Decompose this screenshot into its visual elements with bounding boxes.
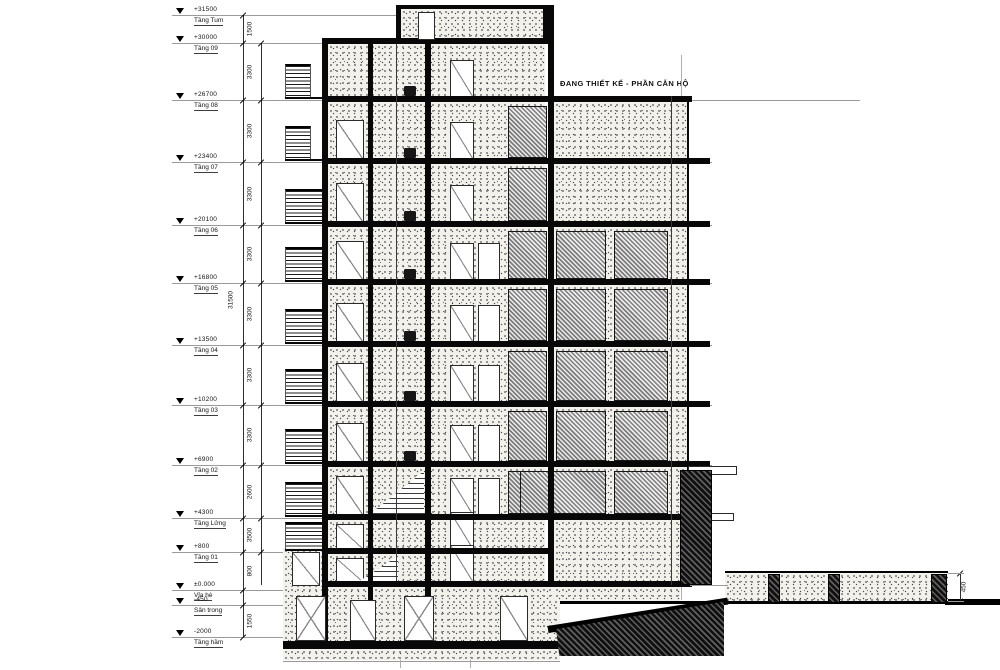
penthouse-wall xyxy=(543,5,550,40)
balcony-railing xyxy=(285,429,324,463)
level-elevation: +13500 xyxy=(194,336,217,343)
balcony-slab xyxy=(285,549,322,551)
basement-door xyxy=(404,596,434,641)
interior-door xyxy=(450,185,474,223)
level-elevation: +20100 xyxy=(194,216,217,223)
level-marker-triangle xyxy=(176,93,184,99)
toilet-fixture xyxy=(404,269,416,279)
shear-wall xyxy=(425,40,431,585)
floor-slab xyxy=(322,548,552,554)
slab-stub xyxy=(692,279,710,285)
stipple-wall xyxy=(328,44,545,96)
balcony-door xyxy=(336,363,364,403)
dimension-text: 1550 xyxy=(247,614,254,628)
dimension-line xyxy=(243,15,244,637)
glazing-hatch-panel xyxy=(614,289,668,341)
level-line xyxy=(172,15,400,16)
level-name: Tầng 03 xyxy=(194,407,218,416)
level-name: Tầng 04 xyxy=(194,347,218,356)
stipple-wall xyxy=(554,164,688,221)
balcony-slab xyxy=(285,280,322,282)
floor-slab xyxy=(322,341,692,347)
level-elevation: +23400 xyxy=(194,153,217,160)
floor-slab xyxy=(322,221,692,227)
core-wall xyxy=(548,5,554,641)
level-marker-triangle xyxy=(176,458,184,464)
slab-stub xyxy=(692,401,710,407)
level-line xyxy=(172,637,283,638)
level-elevation: -450 xyxy=(194,596,208,603)
shear-wall xyxy=(368,40,373,585)
boundary-wall-post xyxy=(828,574,840,603)
dimension-text: 3500 xyxy=(247,528,254,542)
balcony-slab xyxy=(285,222,322,224)
level-line xyxy=(172,590,285,591)
dimension-text: 1500 xyxy=(247,22,254,36)
basement-door xyxy=(500,596,528,641)
level-marker-triangle xyxy=(176,583,184,589)
level-elevation: +800 xyxy=(194,543,209,550)
interior-door xyxy=(450,305,474,343)
dimension-text: 3300 xyxy=(247,247,254,261)
glazing-hatch-panel xyxy=(614,231,668,279)
level-name: Tầng hầm xyxy=(194,639,223,648)
slab-stub xyxy=(692,221,710,227)
dimension-text: 3300 xyxy=(247,64,254,78)
basement-door xyxy=(350,600,376,641)
level-name: Tầng 07 xyxy=(194,164,218,173)
interior-door xyxy=(478,243,500,281)
interior-door xyxy=(450,478,474,516)
balcony-slab xyxy=(285,97,322,99)
stipple-wall xyxy=(554,520,688,581)
entrance-door xyxy=(292,552,320,586)
level-elevation: +26700 xyxy=(194,91,217,98)
level-name: Tầng Lửng xyxy=(194,520,226,529)
balcony-door xyxy=(336,524,364,550)
glazing-hatch-panel xyxy=(556,231,606,279)
interior-door xyxy=(450,365,474,403)
penthouse-window xyxy=(418,12,435,40)
basement-door xyxy=(296,596,326,641)
slab-stub xyxy=(692,158,710,164)
boundary-wall-post xyxy=(768,574,780,603)
dimension-text: 800 xyxy=(247,566,254,577)
toilet-fixture xyxy=(404,148,416,158)
level-marker-triangle xyxy=(176,511,184,517)
balcony-door xyxy=(336,423,364,463)
balcony-slab xyxy=(285,159,322,161)
level-name: Tầng 09 xyxy=(194,45,218,54)
balcony-railing xyxy=(285,522,324,550)
dimension-text: 3300 xyxy=(247,186,254,200)
level-name: Tầng Tum xyxy=(194,17,223,26)
level-marker-triangle xyxy=(176,276,184,282)
dimension-text: 3300 xyxy=(247,368,254,382)
glazing-hatch-panel xyxy=(556,411,606,461)
dimension-text: 31500 xyxy=(228,291,235,309)
level-elevation: ±0.000 xyxy=(194,581,215,588)
level-line xyxy=(172,605,285,606)
balcony-door xyxy=(336,476,364,516)
boundary-wall-post xyxy=(931,574,947,603)
toilet-fixture xyxy=(404,86,416,96)
ground-line xyxy=(945,599,1000,605)
balcony-door xyxy=(336,303,364,343)
toilet-fixture xyxy=(404,331,416,341)
partition-wall xyxy=(396,44,397,581)
floor-slab xyxy=(322,96,692,102)
balcony-door xyxy=(336,183,364,223)
balcony-slab xyxy=(285,342,322,344)
floor-slab xyxy=(322,461,692,467)
interior-door xyxy=(450,243,474,281)
level-name: Tầng 01 xyxy=(194,554,218,563)
glazing-hatch-panel xyxy=(508,106,547,158)
interior-door xyxy=(478,425,500,463)
shear-wall xyxy=(322,40,328,585)
glazing-hatch-panel xyxy=(508,351,547,401)
dimension-text: 3300 xyxy=(247,307,254,321)
level-marker-triangle xyxy=(176,218,184,224)
level-elevation: +31500 xyxy=(194,6,217,13)
balcony-railing xyxy=(285,309,324,343)
glazing-hatch-panel xyxy=(508,168,547,221)
sidewalk-line xyxy=(690,585,728,586)
foundation-line xyxy=(283,661,560,662)
glazing-hatch-panel xyxy=(556,351,606,401)
dimension-text: 2600 xyxy=(247,484,254,498)
level-name: Sân trong xyxy=(194,607,222,616)
roof-slab xyxy=(322,38,552,44)
balcony-railing xyxy=(285,64,311,98)
level-name: Tầng 06 xyxy=(194,227,218,236)
interior-door xyxy=(478,478,500,516)
stipple-wall xyxy=(554,102,688,158)
glazing-hatch-panel xyxy=(508,411,547,461)
balcony-railing xyxy=(285,247,324,281)
glazing-hatch-panel xyxy=(614,411,668,461)
hatched-pier xyxy=(680,470,712,585)
balcony-railing xyxy=(285,126,311,160)
glazing-hatch-panel xyxy=(614,351,668,401)
toilet-fixture xyxy=(404,451,416,461)
level-marker-triangle xyxy=(176,398,184,404)
glazing-hatch-panel xyxy=(556,289,606,341)
interior-door xyxy=(478,365,500,403)
level-elevation: +6900 xyxy=(194,456,213,463)
soil-hatch xyxy=(556,600,724,656)
glazing-hatch-panel xyxy=(520,471,606,514)
floor-slab xyxy=(322,279,692,285)
basement-slab xyxy=(283,641,560,649)
level-name: Tầng 05 xyxy=(194,285,218,294)
level-marker-triangle xyxy=(176,155,184,161)
balcony-railing xyxy=(285,482,324,516)
interior-door xyxy=(450,425,474,463)
floor-slab xyxy=(322,158,692,164)
balcony-slab xyxy=(285,515,322,517)
level-elevation: -2000 xyxy=(194,628,212,635)
ground-fill xyxy=(554,587,680,601)
level-elevation: +10200 xyxy=(194,396,217,403)
design-status-note: ĐANG THIẾT KẾ - PHẦN CĂN HỘ xyxy=(560,79,689,88)
balcony-slab xyxy=(285,462,322,464)
level-name: Tầng 08 xyxy=(194,102,218,111)
level-elevation: +4300 xyxy=(194,509,213,516)
level-elevation: +16800 xyxy=(194,274,217,281)
glazing-hatch-panel xyxy=(614,471,668,514)
level-marker-triangle xyxy=(176,598,184,604)
balcony-slab xyxy=(285,402,322,404)
level-elevation: +30000 xyxy=(194,34,217,41)
building-section-drawing: ĐANG THIẾT KẾ - PHẦN CĂN HỘ 450+31500Tần… xyxy=(0,0,1000,670)
glazing-hatch-panel xyxy=(508,231,547,279)
interior-door xyxy=(450,122,474,160)
floor-slab xyxy=(322,514,692,520)
glazing-hatch-panel xyxy=(508,289,547,341)
dimension-line xyxy=(261,43,262,585)
balcony-railing xyxy=(285,189,324,223)
interior-door xyxy=(450,60,474,98)
level-marker-triangle xyxy=(176,338,184,344)
balcony-door xyxy=(336,120,364,160)
dimension-extension xyxy=(948,573,964,574)
slab-stub xyxy=(692,341,710,347)
interior-door xyxy=(478,305,500,343)
floor-slab xyxy=(322,401,692,407)
dimension-text: 3300 xyxy=(247,124,254,138)
foundation-band xyxy=(283,649,560,660)
dimension-text: 3300 xyxy=(247,428,254,442)
dimension-extension xyxy=(948,601,964,602)
level-marker-triangle xyxy=(176,630,184,636)
toilet-fixture xyxy=(404,391,416,401)
dimension-text: 450 xyxy=(961,582,968,593)
level-marker-triangle xyxy=(176,8,184,14)
level-marker-triangle xyxy=(176,545,184,551)
toilet-fixture xyxy=(404,211,416,221)
balcony-door xyxy=(336,241,364,281)
facade-line xyxy=(671,96,672,585)
balcony-railing xyxy=(285,369,324,403)
balcony-door xyxy=(336,558,364,583)
level-name: Tầng 02 xyxy=(194,467,218,476)
level-marker-triangle xyxy=(176,36,184,42)
